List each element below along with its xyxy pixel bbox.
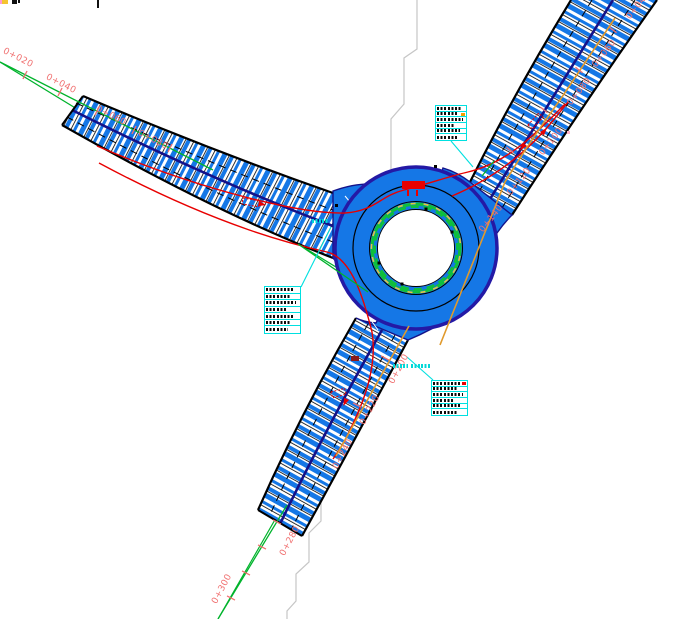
- callout-text-smudge: [266, 308, 287, 311]
- callout-text-smudge: [266, 301, 296, 304]
- callout-bottom: [431, 380, 468, 416]
- edge-mark-tick: [97, 0, 99, 8]
- callout-text-smudge: [437, 107, 462, 110]
- callout-left: [264, 286, 301, 334]
- callout-text-smudge: [437, 112, 457, 115]
- cad-drawing: 0+0200+0400+0600+0800+0400+0600+0800+100…: [0, 0, 685, 619]
- road-arm-west: [62, 96, 333, 258]
- callout-text-smudge: [266, 315, 293, 318]
- callout-accent-chip: [462, 382, 466, 385]
- station-label: 0+020: [1, 46, 34, 70]
- callout-text-smudge: [433, 399, 454, 402]
- cyan-note-bottom: [393, 364, 408, 368]
- callout-text-smudge: [433, 393, 463, 396]
- edge-mark-black2: [18, 0, 20, 3]
- station-label: 0+300: [210, 572, 234, 605]
- roundabout: [335, 165, 497, 329]
- cyan-note-left: [312, 219, 329, 223]
- callout-text-smudge: [437, 129, 460, 132]
- callout-text-smudge: [433, 382, 462, 385]
- central-island: [378, 210, 455, 287]
- edge-mark-yellow: [2, 0, 8, 4]
- callout-text-smudge: [266, 328, 288, 331]
- alignment-axes-visible: [0, 62, 494, 619]
- edge-mark-black1: [12, 0, 17, 4]
- callout-text-smudge: [266, 295, 290, 298]
- callout-row: [436, 134, 466, 140]
- callout-accent-chip: [461, 113, 465, 116]
- callout-top-right: [435, 105, 467, 141]
- station-label: 0+280: [278, 524, 302, 557]
- callout-text-smudge: [437, 124, 455, 127]
- callout-text-smudge: [433, 404, 460, 407]
- callout-row: [265, 326, 300, 333]
- callout-text-smudge: [433, 387, 457, 390]
- callout-text-smudge: [437, 118, 463, 121]
- edge-mark-pink2: [567, 131, 570, 134]
- road-arm-south: [258, 318, 408, 536]
- callout-text-smudge: [437, 136, 458, 139]
- callout-text-smudge: [266, 321, 291, 324]
- callout-text-smudge: [266, 288, 295, 291]
- callout-text-smudge: [433, 411, 458, 414]
- cad-viewport[interactable]: 0+0200+0400+0600+0800+0400+0600+0800+100…: [0, 0, 685, 619]
- callout-row: [432, 409, 467, 415]
- cyan-note-bottom2: [411, 364, 431, 368]
- bus-stop-mark: [351, 356, 359, 361]
